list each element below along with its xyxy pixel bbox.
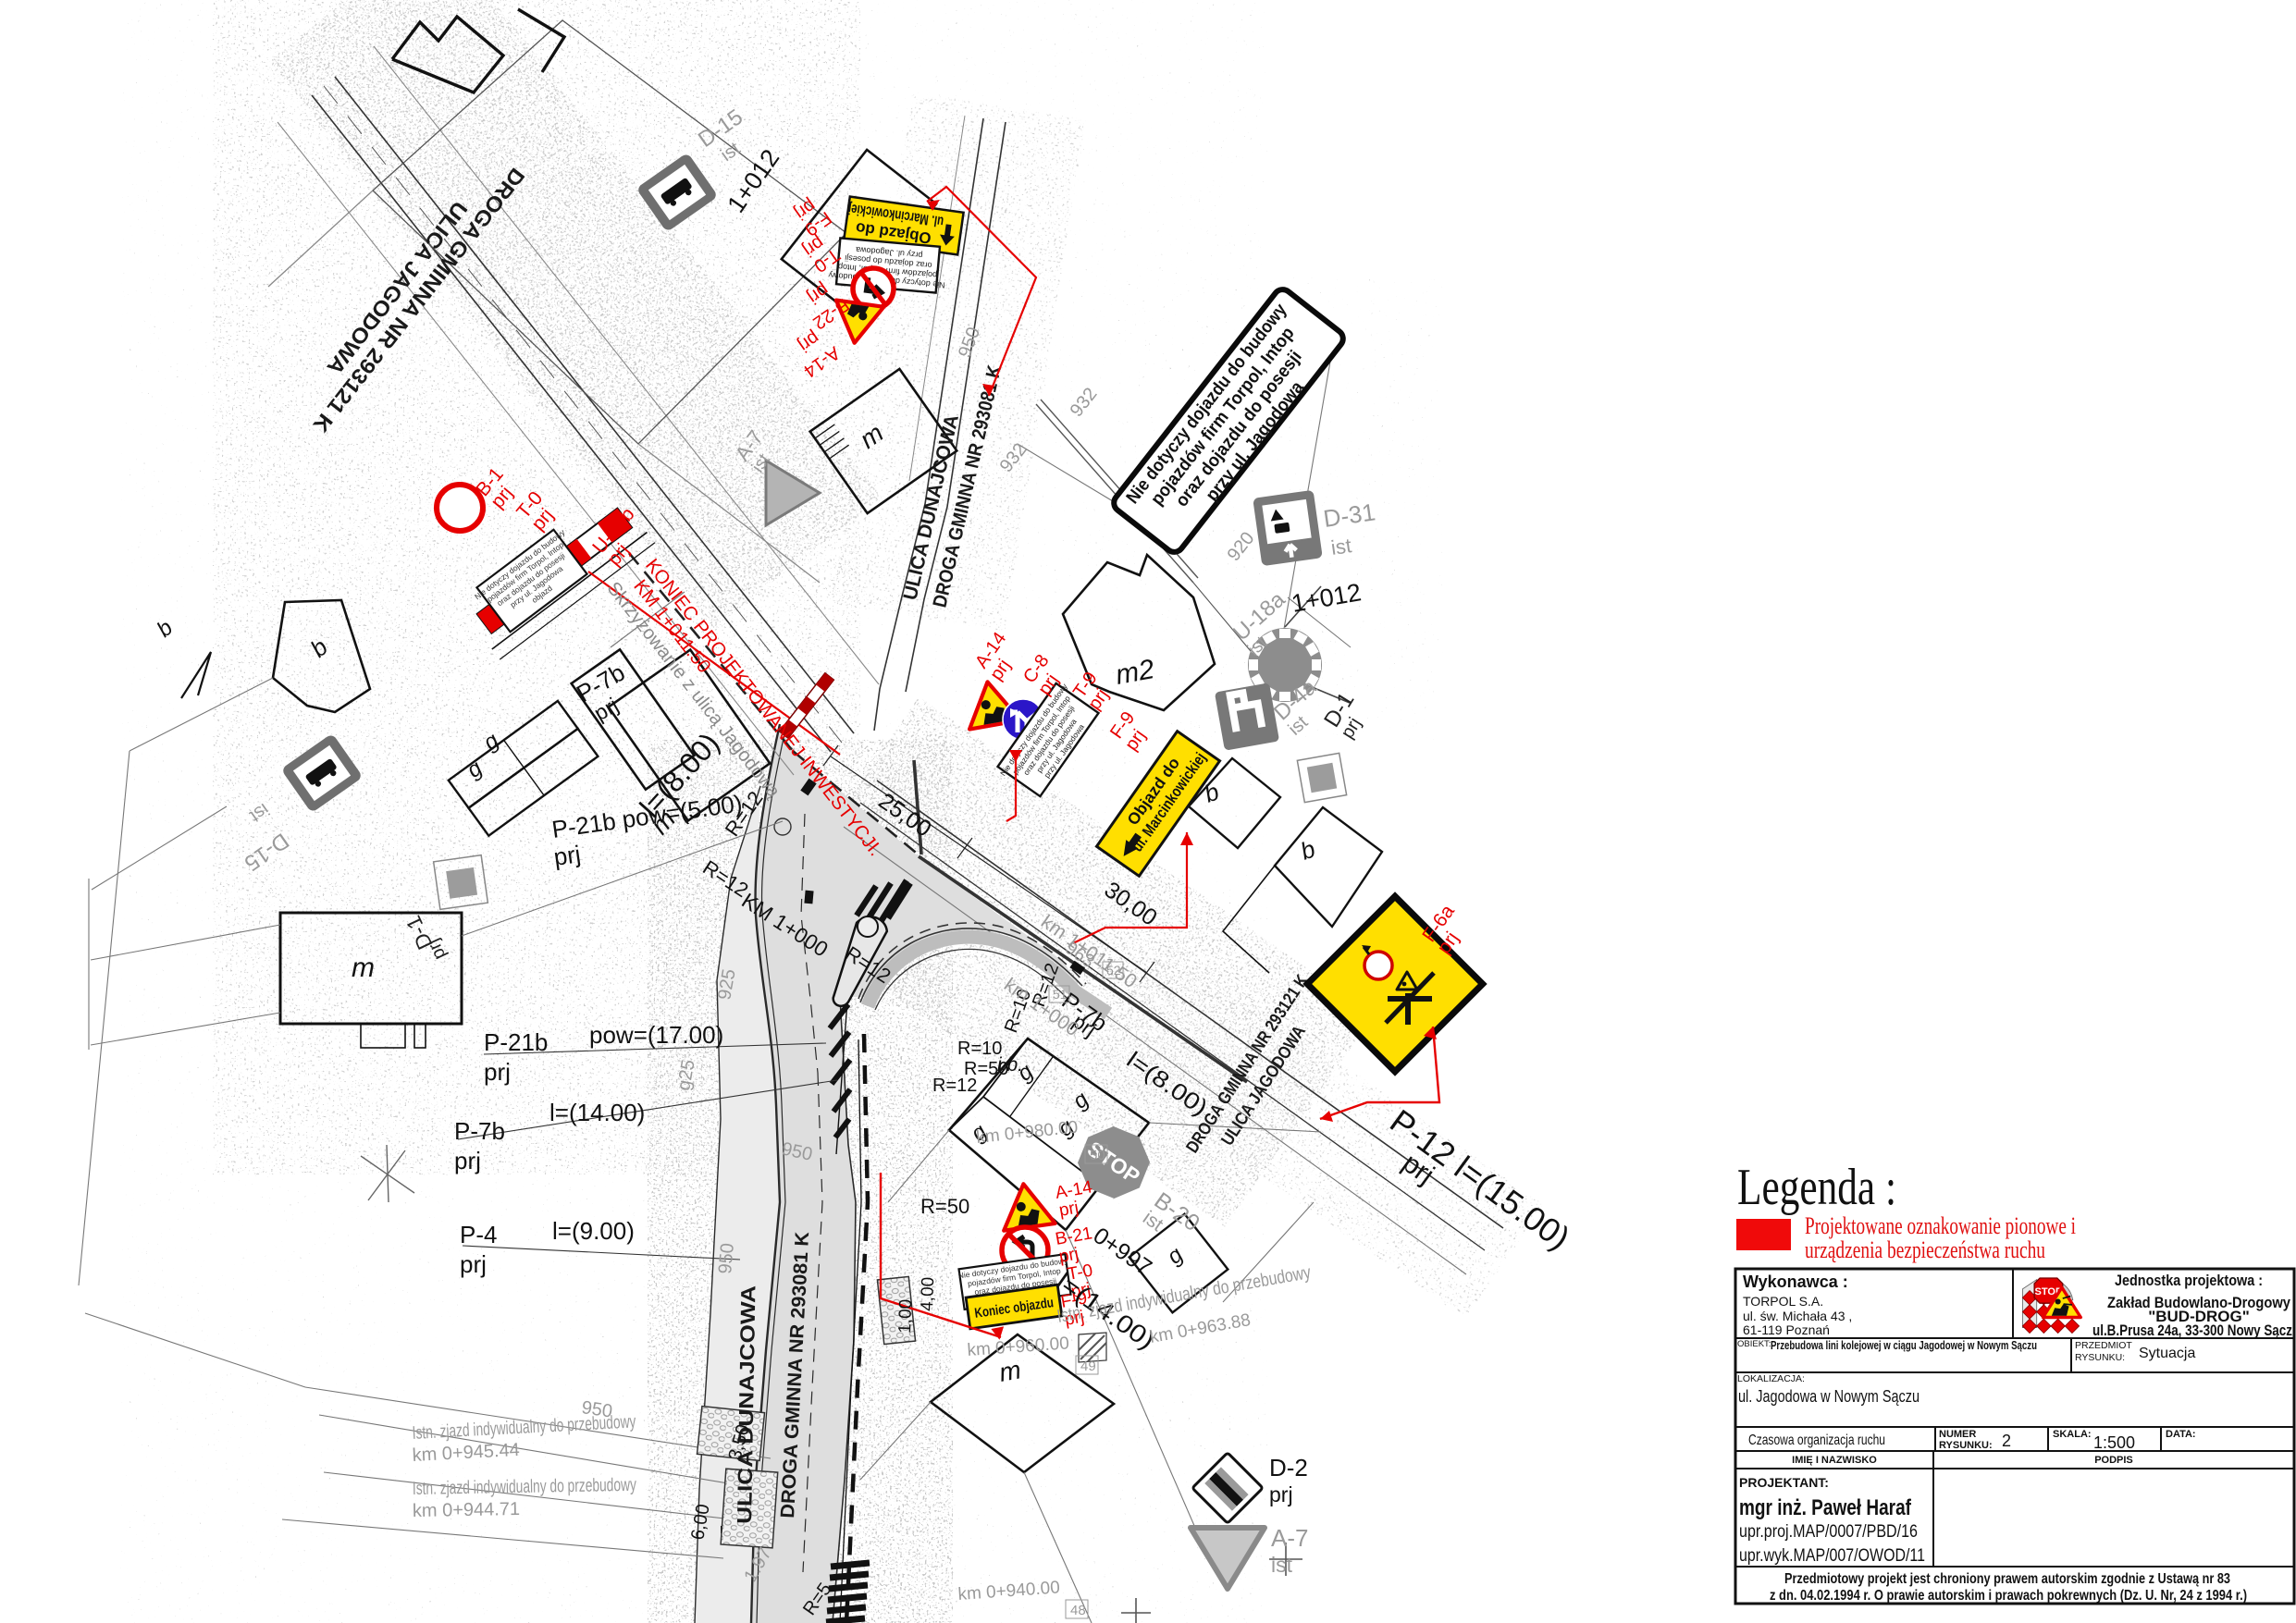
svg-text:prj: prj [484, 1058, 511, 1086]
svg-text:52: 52 [1106, 963, 1121, 977]
svg-text:ist: ist [1271, 1553, 1293, 1577]
svg-text:PROJEKTANT:: PROJEKTANT: [1739, 1475, 1829, 1490]
svg-text:49: 49 [1080, 1359, 1096, 1374]
svg-text:upr.wyk.MAP/007/OWOD/11: upr.wyk.MAP/007/OWOD/11 [1739, 1546, 1925, 1566]
svg-text:950: 950 [580, 1397, 613, 1421]
svg-text:ist: ist [1329, 534, 1352, 559]
svg-text:z dn. 04.02.1994 r. O prawie a: z dn. 04.02.1994 r. O prawie autorskim i… [1770, 1588, 2247, 1604]
svg-text:RYSUNKU:: RYSUNKU: [1939, 1440, 1993, 1451]
svg-text:urządzenia bezpieczeństwa ruch: urządzenia bezpieczeństwa ruchu [1805, 1236, 2045, 1263]
svg-text:51: 51 [1053, 987, 1068, 1002]
svg-text:prj: prj [552, 840, 583, 871]
svg-text:Legenda :: Legenda : [1737, 1159, 1896, 1216]
svg-text:D-2: D-2 [1269, 1454, 1308, 1482]
svg-text:61-119 Poznań: 61-119 Poznań [1743, 1322, 1830, 1337]
svg-text:R=10: R=10 [957, 1039, 1002, 1059]
svg-text:ul. św. Michała 43 ,: ul. św. Michała 43 , [1743, 1309, 1852, 1323]
svg-text:950: 950 [715, 1242, 738, 1274]
svg-text:A-7: A-7 [1271, 1524, 1308, 1552]
svg-text:OBIEKT:: OBIEKT: [1737, 1339, 1771, 1349]
svg-text:1:500: 1:500 [2093, 1433, 2135, 1452]
svg-text:P-7b: P-7b [454, 1117, 505, 1145]
svg-text:48: 48 [1070, 1603, 1086, 1618]
svg-text:50: 50 [1090, 1148, 1105, 1163]
svg-text:IMIĘ I NAZWISKO: IMIĘ I NAZWISKO [1792, 1455, 1877, 1466]
svg-text:NUMER: NUMER [1939, 1429, 1976, 1440]
svg-text:mgr inż. Paweł Haraf: mgr inż. Paweł Haraf [1739, 1495, 1912, 1520]
svg-text:pow=(17.00): pow=(17.00) [589, 1021, 723, 1049]
svg-text:Przedmiotowy projekt jest chro: Przedmiotowy projekt jest chroniony praw… [1784, 1571, 2230, 1587]
svg-text:Sytuacja: Sytuacja [2139, 1346, 2195, 1361]
svg-text:Jednostka projektowa :: Jednostka projektowa : [2115, 1272, 2263, 1289]
svg-text:4,00: 4,00 [918, 1276, 938, 1311]
svg-text:m: m [352, 953, 375, 983]
svg-text:Czasowa organizacja ruchu: Czasowa organizacja ruchu [1748, 1432, 1885, 1448]
svg-text:PRZEDMIOT: PRZEDMIOT [2075, 1340, 2132, 1351]
svg-text:prj: prj [454, 1147, 481, 1174]
svg-text:i.b.: i.b. [997, 1054, 1023, 1076]
svg-text:P-21b: P-21b [484, 1028, 548, 1056]
svg-text:ul. Jagodowa w Nowym Sączu: ul. Jagodowa w Nowym Sączu [1738, 1387, 1920, 1406]
svg-text:R=12: R=12 [932, 1076, 977, 1096]
svg-text:Wykonawca :: Wykonawca : [1743, 1273, 1848, 1291]
svg-text:1,00: 1,00 [895, 1298, 916, 1334]
svg-text:l=(9.00): l=(9.00) [552, 1217, 635, 1245]
svg-text:ULICA DUNAJCOWA: ULICA DUNAJCOWA [733, 1285, 760, 1525]
svg-text:TORPOL S.A.: TORPOL S.A. [1743, 1294, 1823, 1309]
svg-text:Projektowane oznakowanie piono: Projektowane oznakowanie pionowe i [1805, 1212, 2076, 1239]
svg-text:PODPIS: PODPIS [2094, 1455, 2133, 1466]
svg-text:Przebudowa lini kolejowej w ci: Przebudowa lini kolejowej w ciągu Jagodo… [1771, 1338, 2037, 1352]
svg-text:LOKALIZACJA:: LOKALIZACJA: [1737, 1373, 1805, 1384]
svg-text:2: 2 [2002, 1432, 2011, 1450]
svg-text:l=(14.00): l=(14.00) [549, 1099, 645, 1126]
svg-text:prj: prj [1057, 1199, 1080, 1221]
svg-text:P-4: P-4 [460, 1221, 497, 1248]
svg-text:RYSUNKU:: RYSUNKU: [2075, 1352, 2125, 1363]
svg-text:R=50: R=50 [920, 1195, 969, 1218]
svg-text:Istn. zjazd indywidualny do pr: Istn. zjazd indywidualny do przebudowy [413, 1475, 636, 1499]
svg-text:prj: prj [460, 1250, 487, 1278]
svg-text:km 0+944.71: km 0+944.71 [413, 1499, 521, 1521]
svg-text:ul.B.Prusa 24a, 33-300 Nowy Są: ul.B.Prusa 24a, 33-300 Nowy Sącz [2092, 1322, 2292, 1339]
svg-text:upr.proj.MAP/0007/PBD/16: upr.proj.MAP/0007/PBD/16 [1739, 1522, 1918, 1542]
svg-text:DATA:: DATA: [2166, 1429, 2196, 1440]
svg-text:SKALA:: SKALA: [2053, 1429, 2092, 1440]
svg-text:prj: prj [1269, 1482, 1293, 1506]
